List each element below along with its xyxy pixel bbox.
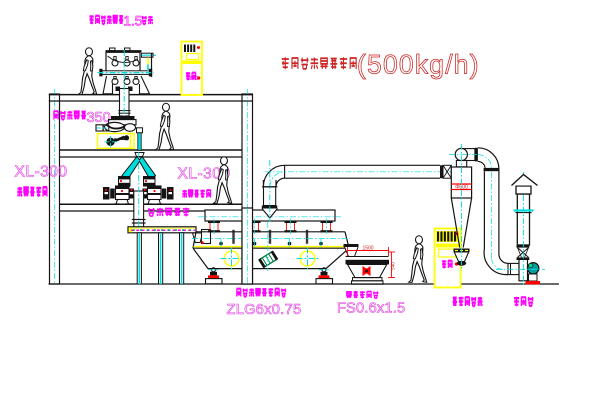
svg-text:(500kg/h): (500kg/h) <box>357 50 480 80</box>
svg-text:1.5: 1.5 <box>124 14 143 29</box>
svg-text:MD: MD <box>190 76 199 82</box>
svg-text:XL-300: XL-300 <box>15 164 68 181</box>
svg-text:540: 540 <box>391 262 396 270</box>
svg-text:FS0.6x1.5: FS0.6x1.5 <box>337 301 405 317</box>
svg-text:1500: 1500 <box>362 246 373 252</box>
svg-text:ZLG6x0.75: ZLG6x0.75 <box>227 302 302 318</box>
